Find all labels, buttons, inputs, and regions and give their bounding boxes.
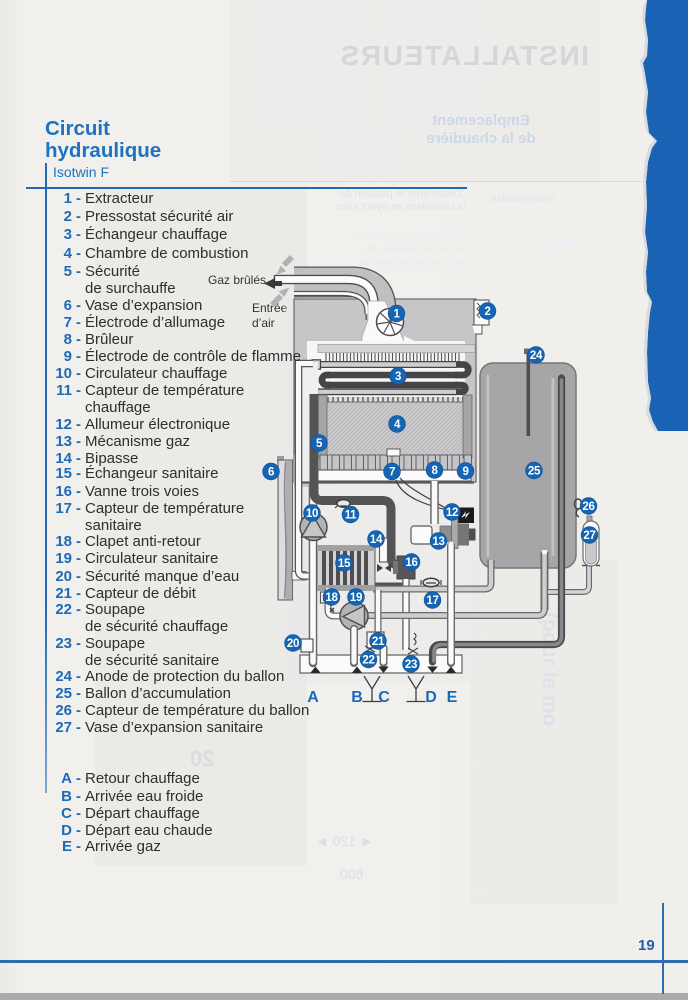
svg-text:11: 11 (345, 510, 357, 522)
svg-text:19: 19 (350, 592, 362, 604)
svg-text:23: 23 (405, 659, 417, 671)
svg-text:16: 16 (405, 557, 417, 569)
svg-text:4: 4 (394, 419, 401, 431)
svg-text:6: 6 (268, 467, 274, 479)
svg-text:B: B (351, 689, 363, 706)
svg-text:15: 15 (338, 558, 351, 570)
svg-text:1: 1 (393, 309, 400, 321)
svg-text:8: 8 (431, 465, 438, 477)
svg-text:2: 2 (484, 306, 490, 318)
svg-text:22: 22 (362, 655, 374, 667)
svg-text:C: C (378, 689, 390, 706)
svg-text:14: 14 (370, 534, 383, 546)
svg-text:21: 21 (372, 636, 385, 648)
svg-text:27: 27 (583, 530, 595, 542)
svg-text:5: 5 (316, 438, 323, 450)
svg-text:13: 13 (432, 536, 444, 548)
svg-text:9: 9 (462, 466, 468, 478)
svg-text:26: 26 (582, 501, 594, 513)
svg-text:D: D (425, 689, 437, 706)
svg-text:20: 20 (287, 638, 299, 650)
svg-text:3: 3 (395, 371, 401, 383)
svg-text:24: 24 (530, 350, 543, 362)
svg-text:17: 17 (426, 595, 438, 607)
svg-text:12: 12 (446, 507, 458, 519)
svg-text:18: 18 (325, 592, 338, 604)
svg-text:E: E (447, 689, 458, 706)
svg-text:25: 25 (528, 466, 541, 478)
svg-text:7: 7 (389, 467, 395, 479)
svg-text:10: 10 (306, 508, 318, 520)
